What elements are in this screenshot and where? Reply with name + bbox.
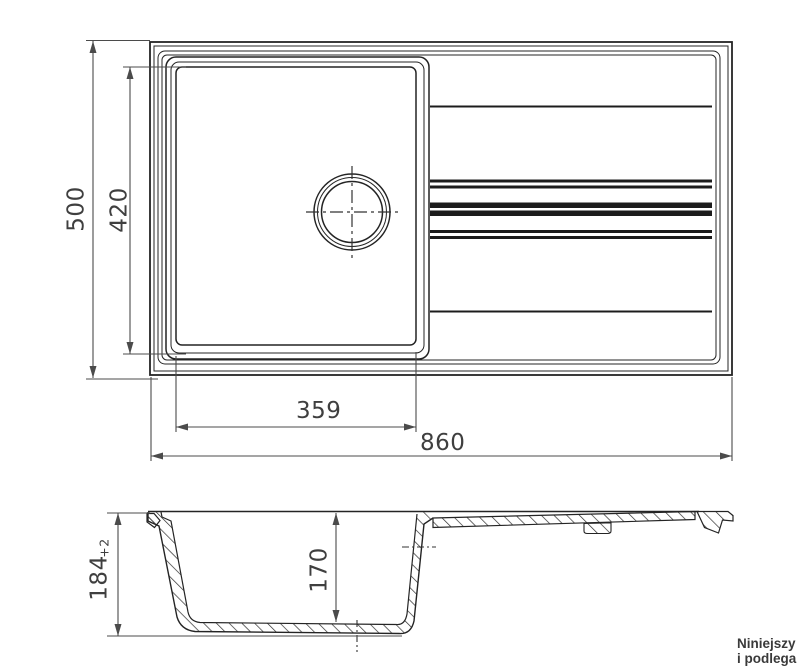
dim-label-overall-depth: 184 <box>87 555 113 600</box>
drainboard-groove-line <box>430 186 712 189</box>
drainboard-groove-line <box>430 180 712 183</box>
dim-184-arrow-up <box>115 513 122 525</box>
drainboard-groove-line <box>430 211 712 217</box>
drawing-note: Niniejszy i podlega <box>737 636 800 666</box>
dim-label-overall-height: 500 <box>64 186 90 231</box>
section-bowl-inner-outline <box>161 512 417 625</box>
section-right-end-profile <box>697 512 733 534</box>
dim-label-bowl-width: 359 <box>296 398 341 424</box>
technical-drawing-page: 500 420 359 860 184 <box>0 0 800 668</box>
dim-860-arrow-right <box>720 453 732 460</box>
drainboard-groove-line <box>430 236 712 239</box>
section-bowl-shell-hatch <box>148 512 433 634</box>
top-view <box>150 42 732 375</box>
dim-500-arrow-up <box>90 41 97 53</box>
dim-359-arrow-right <box>404 424 416 431</box>
sink-outer-edge-inner-line <box>154 46 728 371</box>
section-drainboard-notch <box>584 523 611 534</box>
dim-359-arrow-left <box>176 424 188 431</box>
dim-420-arrow-down <box>127 342 134 354</box>
drainboard-groove-line <box>430 311 712 313</box>
drainboard-groove-line <box>430 230 712 233</box>
section-view-dimension-labels: 184 +2 170 <box>87 538 333 600</box>
dim-860-arrow-left <box>151 453 163 460</box>
section-view <box>147 512 733 653</box>
dim-500-arrow-down <box>90 366 97 378</box>
drain-middle-circle <box>318 178 387 247</box>
section-view-dimensions <box>107 513 402 636</box>
sink-technical-drawing: 500 420 359 860 184 <box>0 0 800 668</box>
section-bowl-outer-outline <box>148 512 433 634</box>
bowl-inner-edge <box>176 67 416 345</box>
dim-label-bowl-height: 420 <box>107 187 133 232</box>
dim-170-arrow-down <box>333 610 340 622</box>
dim-label-overall-width: 860 <box>420 430 465 456</box>
dim-184-arrow-down <box>115 624 122 636</box>
dim-420-arrow-up <box>127 67 134 79</box>
dim-170-arrow-up <box>333 513 340 525</box>
dim-label-depth-tolerance: +2 <box>97 538 112 557</box>
dim-label-bowl-depth: 170 <box>307 547 333 592</box>
drainboard-groove-line <box>430 106 712 108</box>
drainboard-groove-line <box>430 203 712 209</box>
drainboard-grooves <box>430 106 712 313</box>
sink-outer-edge <box>150 42 732 375</box>
top-view-dimension-labels: 500 420 359 860 <box>64 186 466 456</box>
drawing-note-line1: Niniejszy <box>737 636 800 651</box>
top-view-dimensions <box>86 41 732 462</box>
drawing-note-line2: i podlega <box>737 651 800 666</box>
section-drainboard-slab <box>433 512 695 528</box>
